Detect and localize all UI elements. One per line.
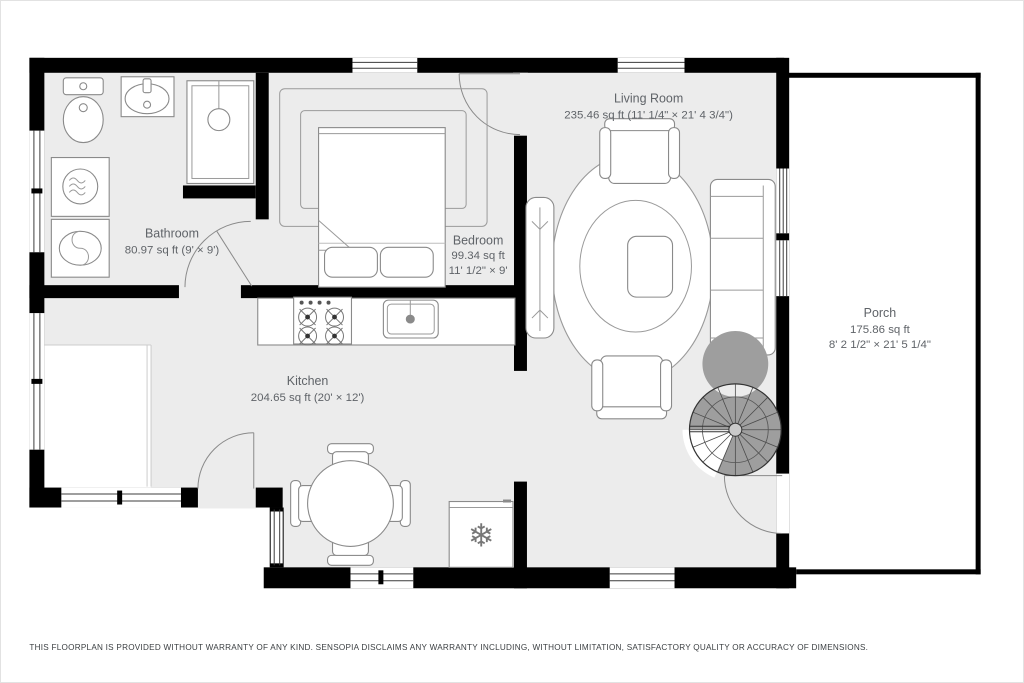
porch-dimensions: 8' 2 1/2" × 21' 5 1/4": [829, 339, 931, 351]
floorplan-canvas: ❄: [0, 0, 1024, 683]
kitchen-area: 204.65 sq ft (20' × 12'): [251, 392, 365, 404]
porch-label: Porch: [864, 306, 897, 320]
window-left-bathroom: [29, 131, 44, 253]
dryer-icon: [51, 219, 109, 277]
washer-icon: [51, 158, 109, 217]
coffee-table-icon: [628, 236, 673, 297]
kitchen-label: Kitchen: [287, 374, 329, 388]
window-jog-kitchen: [271, 510, 283, 566]
floorplan-drawing: ❄: [1, 1, 1023, 682]
porch-area: 175.86 sq ft: [850, 324, 911, 336]
window-bottom-kitchen: [350, 567, 413, 588]
bathroom-label: Bathroom: [145, 226, 199, 240]
bedroom-area: 99.34 sq ft: [451, 250, 505, 262]
shower-icon: [187, 81, 254, 184]
window-living-porch-lower: [776, 240, 789, 296]
kitchen-cabinet-strip: [44, 345, 151, 487]
window-bottomleft-kitchen: [61, 488, 181, 508]
window-bottom-living: [610, 567, 675, 588]
stove-icon: [294, 297, 352, 345]
armchair-bottom-icon: [592, 356, 672, 419]
window-top-living: [618, 58, 685, 73]
bedroom-dimensions: 11' 1/2" × 9': [449, 265, 508, 277]
window-left-kitchen: [29, 313, 44, 450]
fridge-icon: ❄: [449, 500, 513, 568]
disclaimer-text: THIS FLOORPLAN IS PROVIDED WITHOUT WARRA…: [29, 643, 868, 652]
bedroom-label: Bedroom: [453, 233, 504, 247]
toilet-icon: [63, 78, 103, 143]
living-room-label: Living Room: [614, 92, 683, 106]
living-room-area: 235.46 sq ft (11' 1/4" × 21' 4 3/4"): [564, 110, 733, 122]
window-top-bedroom: [352, 58, 417, 73]
freezer-icon: ❄: [468, 517, 495, 553]
window-living-porch-upper: [776, 169, 789, 234]
sideboard-icon: [526, 197, 554, 338]
bathroom-area: 80.97 sq ft (9' × 9'): [125, 244, 220, 256]
sofa-icon: [710, 179, 775, 354]
kitchen-sink-icon: [383, 300, 438, 338]
armchair-top-icon: [600, 119, 680, 184]
bed-icon: [319, 128, 446, 288]
bathroom-sink-icon: [121, 77, 174, 117]
